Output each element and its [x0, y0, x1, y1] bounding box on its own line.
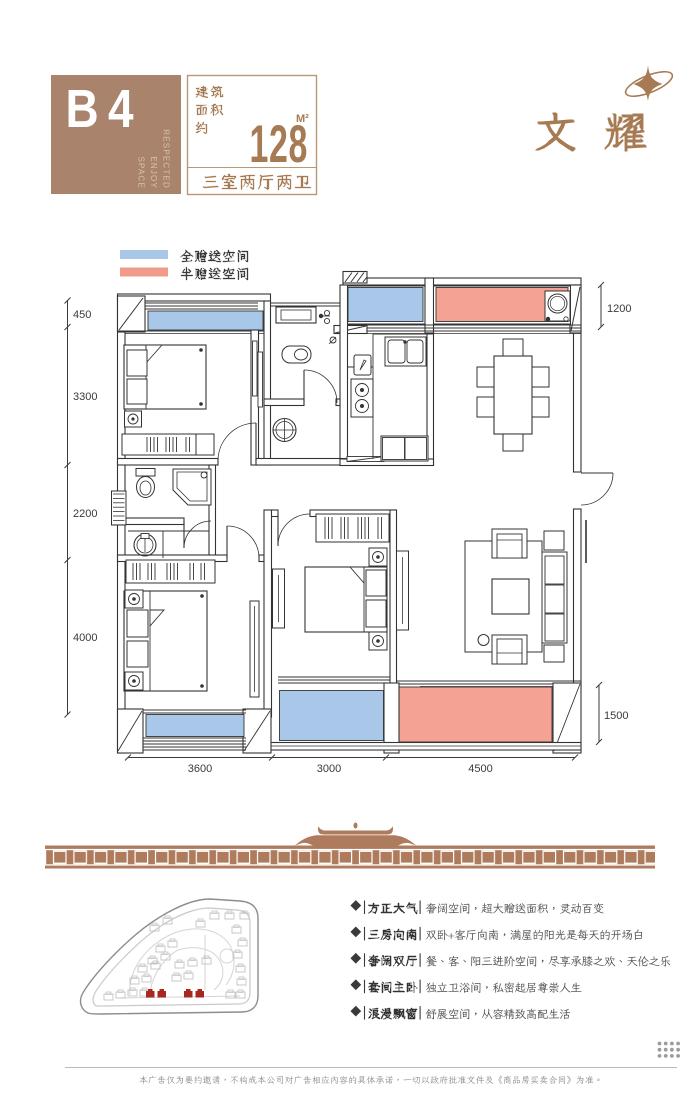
svg-text:3300: 3300	[73, 391, 97, 403]
svg-text:3600: 3600	[188, 763, 212, 775]
svg-text:B4: B4	[66, 79, 143, 139]
svg-text:1200: 1200	[607, 303, 631, 315]
svg-text:2200: 2200	[73, 508, 97, 520]
svg-text:128: 128	[249, 116, 308, 174]
svg-text:4000: 4000	[73, 632, 97, 644]
svg-text:4500: 4500	[468, 763, 492, 775]
svg-text:3000: 3000	[317, 763, 341, 775]
svg-text:1500: 1500	[604, 710, 628, 722]
svg-text:450: 450	[73, 309, 91, 321]
